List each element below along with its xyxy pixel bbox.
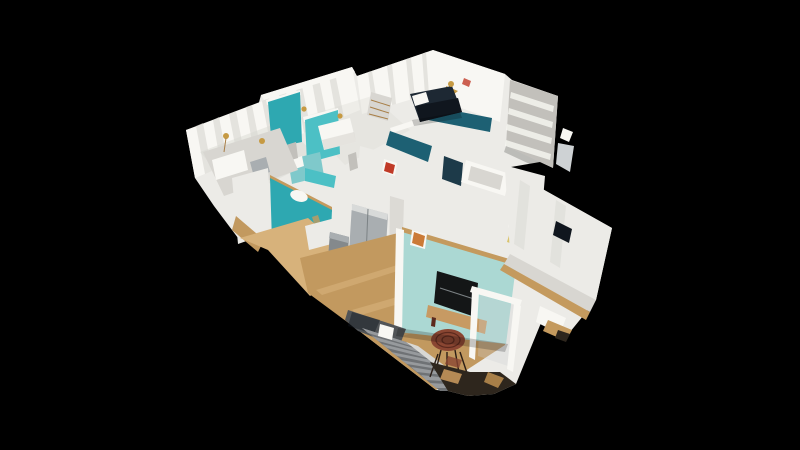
- shard-upper: [560, 128, 573, 142]
- lamp-dot-5: [448, 81, 454, 87]
- shard-lower: [556, 143, 574, 172]
- dollhouse-3d-model: [0, 0, 800, 450]
- lamp-dot-2: [259, 138, 265, 144]
- floating-shards: [556, 128, 574, 172]
- viewer-canvas[interactable]: [0, 0, 800, 450]
- lamp-dot-4: [337, 113, 342, 118]
- lamp-dot-3: [301, 106, 306, 111]
